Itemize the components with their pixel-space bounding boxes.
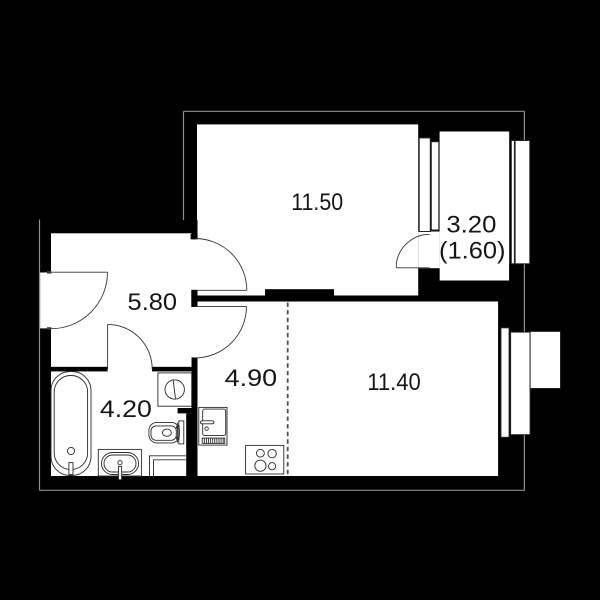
svg-text:11.50: 11.50 bbox=[291, 189, 343, 216]
svg-text:4.20: 4.20 bbox=[100, 396, 152, 423]
svg-text:4.90: 4.90 bbox=[225, 365, 278, 392]
svg-text:(1.60): (1.60) bbox=[439, 238, 506, 265]
svg-text:11.40: 11.40 bbox=[367, 369, 421, 396]
svg-text:3.20: 3.20 bbox=[446, 212, 496, 239]
svg-text:5.80: 5.80 bbox=[128, 289, 178, 316]
